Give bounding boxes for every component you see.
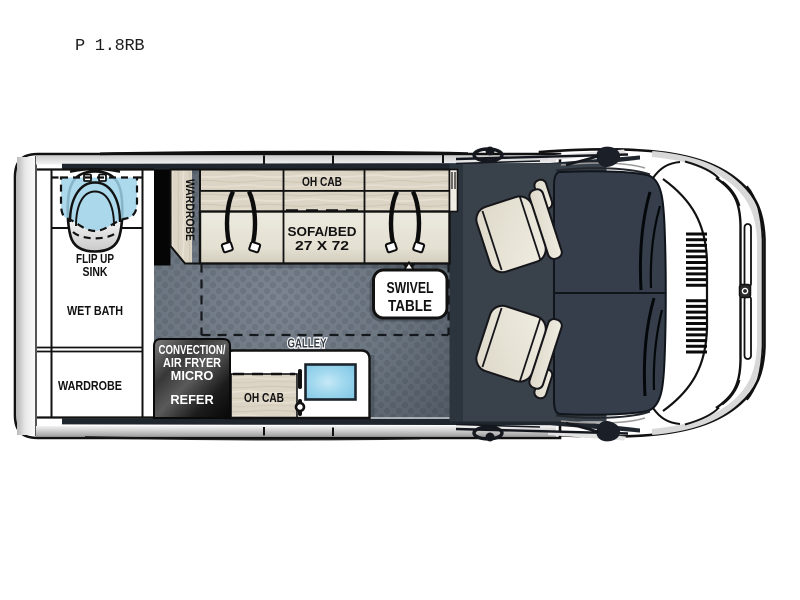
svg-text:P 1.8RB: P 1.8RB (75, 37, 144, 56)
svg-text:WARDROBE: WARDROBE (58, 379, 122, 393)
svg-text:MICRO: MICRO (171, 368, 214, 383)
svg-text:REFER: REFER (170, 392, 213, 407)
svg-text:OH CAB: OH CAB (244, 390, 284, 405)
svg-text:WET BATH: WET BATH (67, 304, 123, 318)
svg-text:SINK: SINK (83, 265, 108, 279)
svg-text:SOFA/BED: SOFA/BED (288, 224, 357, 239)
svg-text:TABLE: TABLE (388, 298, 432, 315)
svg-text:OH CAB: OH CAB (302, 174, 342, 189)
svg-text:SWIVEL: SWIVEL (387, 280, 434, 297)
svg-text:WARDROBE: WARDROBE (183, 179, 195, 241)
svg-text:GALLEY: GALLEY (288, 337, 328, 351)
svg-text:27 X 72: 27 X 72 (295, 238, 349, 253)
svg-text:FLIP UP: FLIP UP (76, 252, 114, 266)
